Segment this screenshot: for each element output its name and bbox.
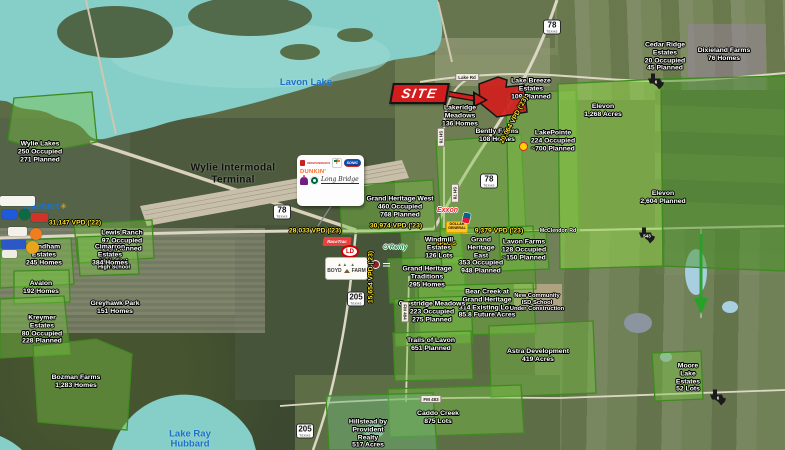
development-boundary-bozman xyxy=(33,339,132,430)
planned-road-arrow-head xyxy=(694,298,708,314)
site-boundary xyxy=(479,77,527,117)
development-boundary-wylie-lakes xyxy=(8,92,97,152)
development-boundary-hillstead xyxy=(326,393,437,450)
development-boundary-cimarron xyxy=(77,235,139,276)
development-boundary-trails-of-lavon xyxy=(393,331,473,381)
callout-leader-line xyxy=(318,203,333,226)
development-boundary-elevon-north xyxy=(558,79,663,269)
development-boundary-elevon-south xyxy=(661,76,785,271)
development-boundary-moore-lake xyxy=(652,351,703,401)
development-boundary-lavon-farms xyxy=(499,231,549,271)
development-boundary-grand-heritage-west xyxy=(339,180,436,234)
aerial-site-map: SITE Lavon Lake Lake RayHubbard Wylie In… xyxy=(0,0,785,450)
